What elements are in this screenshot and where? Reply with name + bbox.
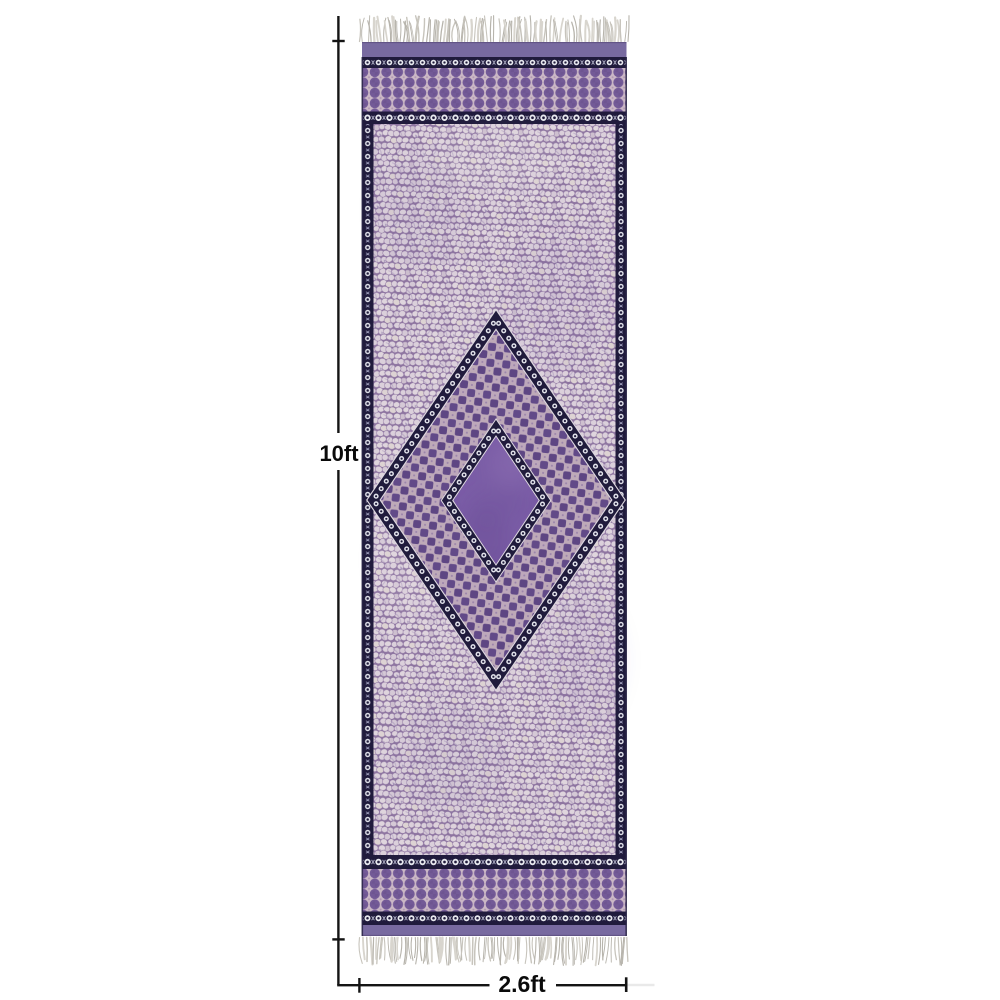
svg-text:2.6ft: 2.6ft [498, 971, 546, 997]
svg-text:10ft: 10ft [319, 441, 359, 466]
